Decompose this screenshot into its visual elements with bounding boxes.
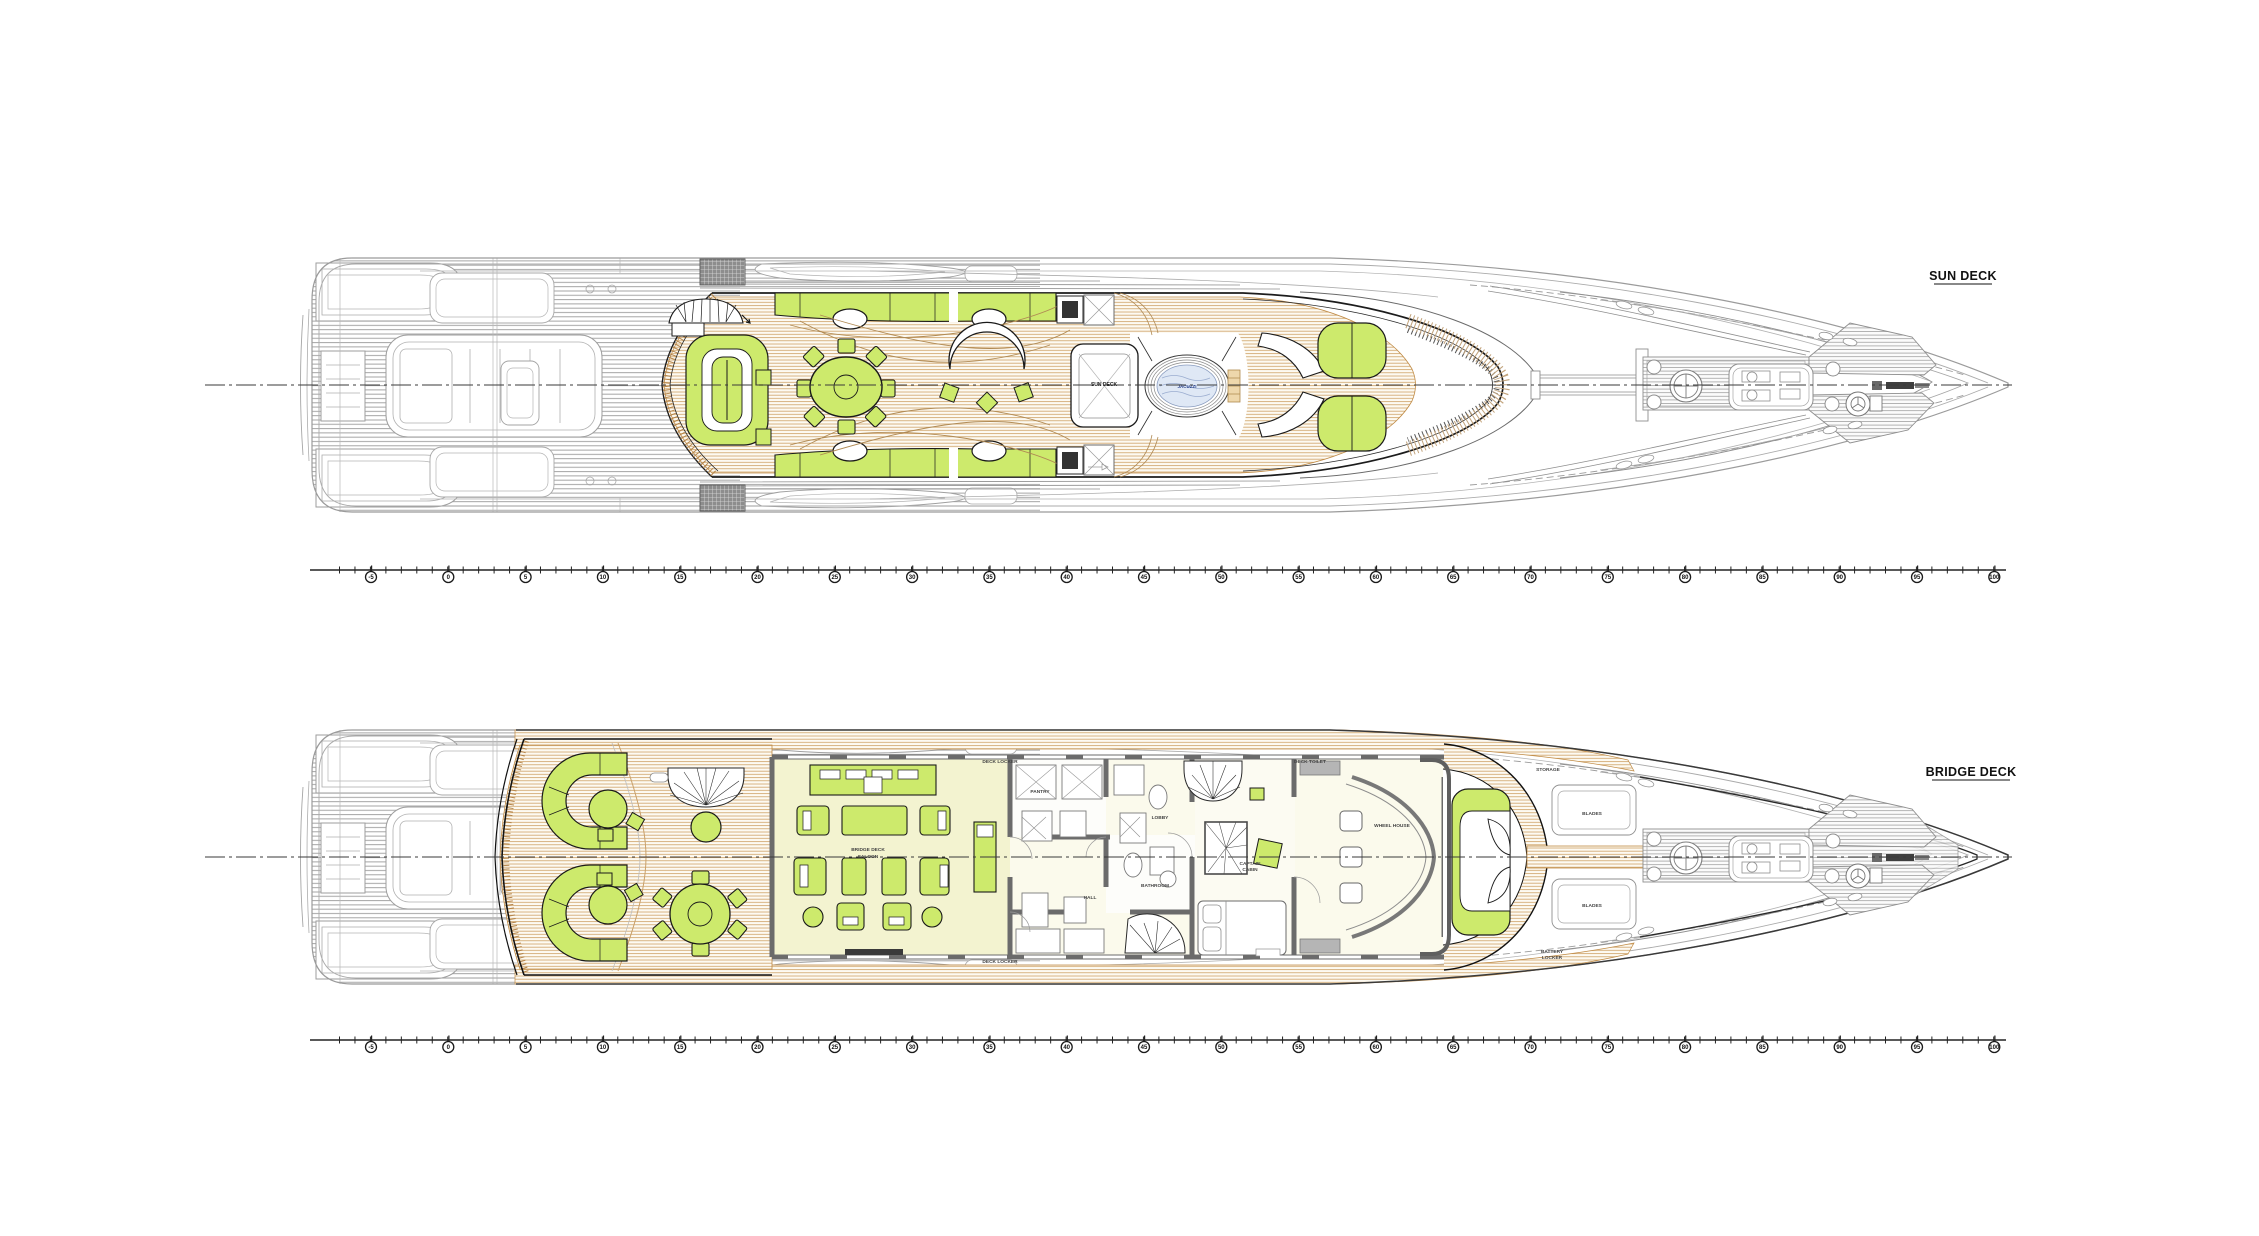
svg-text:CABIN: CABIN [1242, 867, 1258, 873]
svg-text:DECK TOILET: DECK TOILET [1294, 759, 1326, 765]
svg-text:BLADES: BLADES [1582, 811, 1603, 817]
svg-text:STORAGE: STORAGE [1536, 767, 1560, 773]
svg-text:BRIDGE DECK: BRIDGE DECK [851, 847, 885, 853]
svg-text:DECK LOCKER: DECK LOCKER [982, 759, 1018, 765]
svg-text:BLADES: BLADES [1582, 903, 1603, 909]
svg-text:SUN DECK: SUN DECK [1929, 269, 1997, 283]
svg-text:BATTERY: BATTERY [1541, 949, 1564, 955]
svg-text:LOBBY: LOBBY [1152, 815, 1170, 821]
svg-text:LOCKER: LOCKER [1542, 955, 1563, 961]
svg-text:DECK LOCKER: DECK LOCKER [982, 959, 1018, 965]
svg-text:CAPTAIN: CAPTAIN [1240, 861, 1261, 867]
svg-text:HALL: HALL [1084, 895, 1097, 901]
svg-text:WHEEL HOUSE: WHEEL HOUSE [1374, 823, 1410, 829]
svg-text:BATHROOM: BATHROOM [1141, 883, 1169, 889]
svg-text:BRIDGE DECK: BRIDGE DECK [1926, 765, 2017, 779]
svg-text:SALOON: SALOON [858, 854, 879, 860]
svg-text:PANTRY: PANTRY [1030, 789, 1050, 795]
